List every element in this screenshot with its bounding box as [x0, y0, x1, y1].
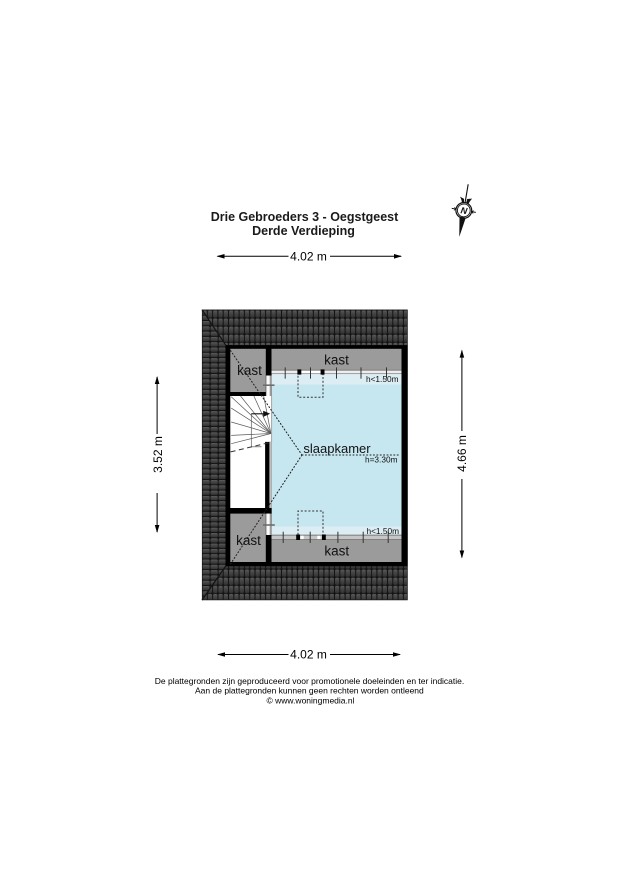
svg-text:3.52 m: 3.52 m — [151, 436, 165, 473]
svg-text:kast: kast — [324, 544, 349, 559]
svg-text:h<1.50m: h<1.50m — [366, 374, 399, 384]
svg-text:4.66 m: 4.66 m — [455, 435, 469, 472]
svg-text:© www.woningmedia.nl: © www.woningmedia.nl — [267, 695, 355, 705]
svg-text:h=3.30m: h=3.30m — [365, 455, 398, 465]
svg-text:Derde Verdieping: Derde Verdieping — [252, 224, 355, 238]
svg-text:slaapkamer: slaapkamer — [303, 441, 371, 456]
svg-text:4.02 m: 4.02 m — [290, 250, 327, 264]
svg-text:kast: kast — [324, 353, 349, 368]
svg-text:De plattegronden zijn geproduc: De plattegronden zijn geproduceerd voor … — [155, 676, 465, 686]
svg-text:4.02 m: 4.02 m — [290, 648, 327, 662]
svg-text:Aan de plattegronden kunnen ge: Aan de plattegronden kunnen geen rechten… — [195, 686, 424, 696]
svg-text:h<1.50m: h<1.50m — [366, 526, 399, 536]
svg-text:kast: kast — [237, 363, 262, 378]
svg-text:kast: kast — [236, 533, 261, 548]
svg-text:Drie Gebroeders 3 - Oegstgeest: Drie Gebroeders 3 - Oegstgeest — [211, 210, 399, 224]
